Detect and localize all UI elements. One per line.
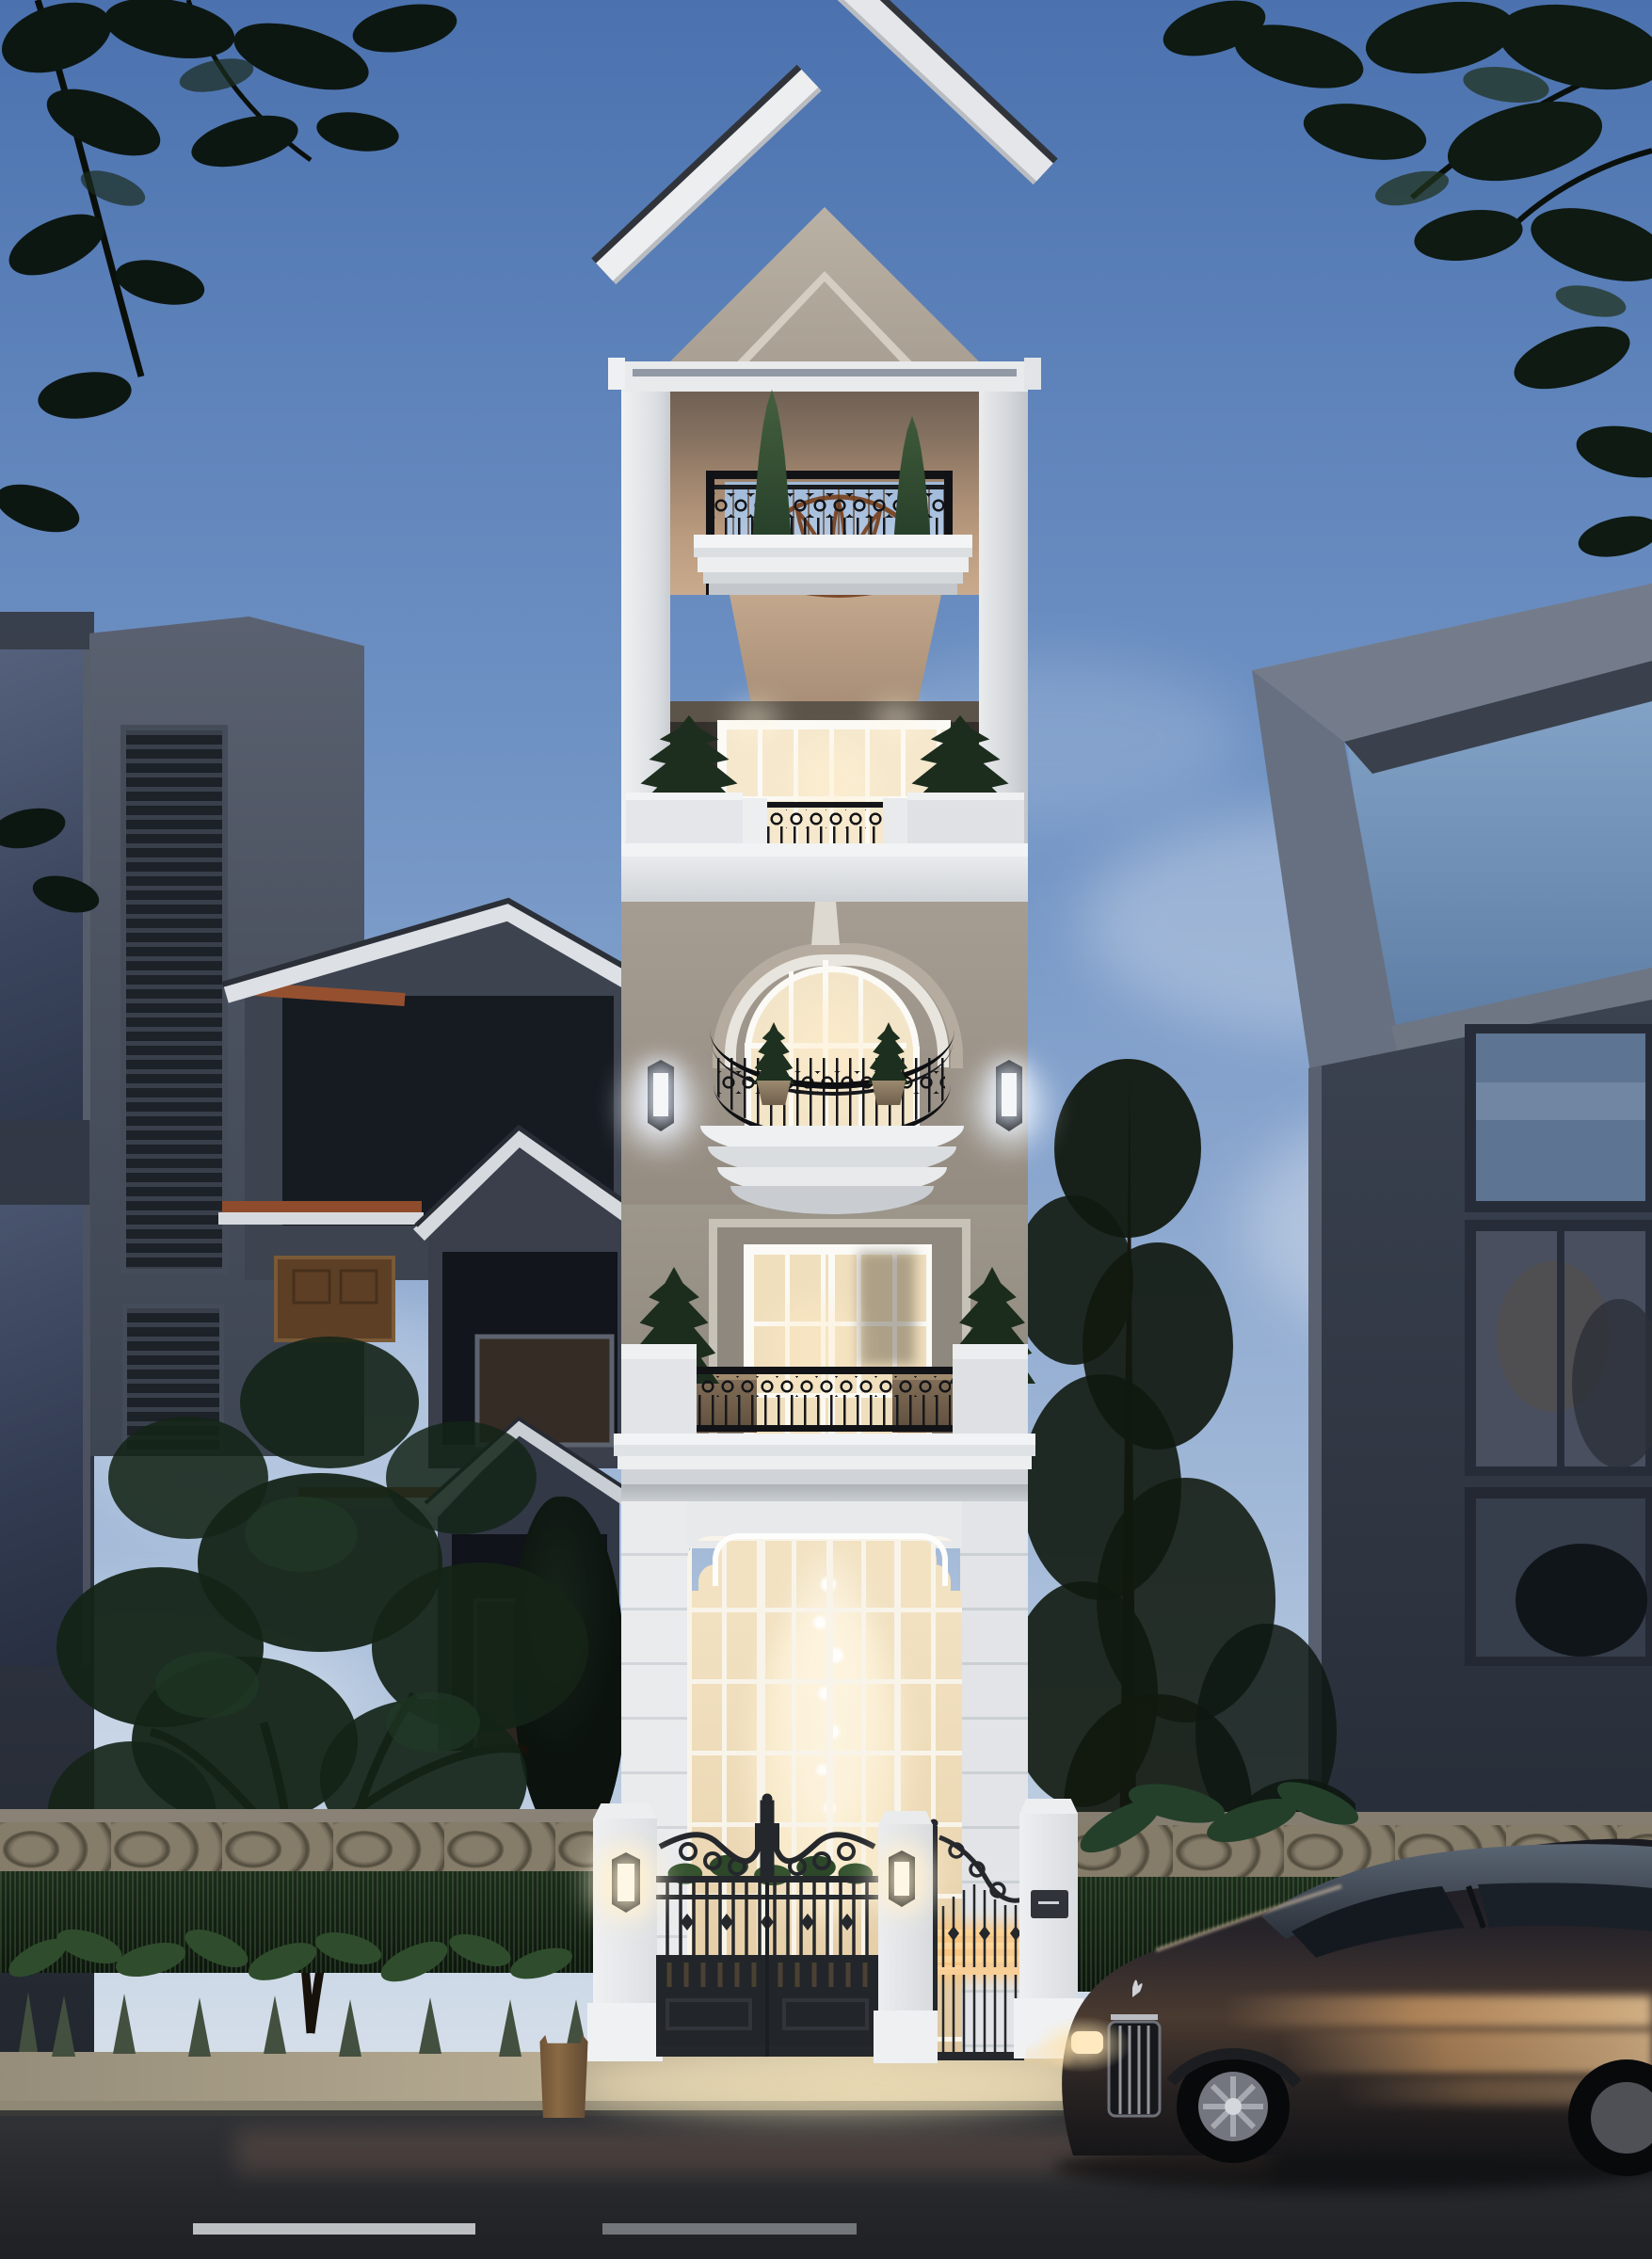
canopy-leaves bbox=[1572, 419, 1652, 486]
gate-center-post bbox=[761, 1801, 774, 1882]
canopy-leaves bbox=[1506, 314, 1637, 402]
fascia-corner-right bbox=[1024, 358, 1041, 390]
main-gate bbox=[654, 1793, 880, 2071]
tropical-plants-left bbox=[0, 1901, 621, 2071]
canopy-leaves bbox=[0, 802, 69, 855]
glass-1-band bbox=[1476, 1082, 1645, 1120]
lane-dash bbox=[193, 2223, 475, 2235]
pillar-lantern-left-glass bbox=[617, 1864, 634, 1901]
loggia-rail-scrolls bbox=[767, 809, 883, 828]
canopy-leaves bbox=[349, 0, 461, 59]
side-gate-bottom-rail bbox=[938, 2052, 1024, 2060]
leaf-cluster bbox=[240, 1337, 419, 1468]
canopy-leaves bbox=[1575, 509, 1652, 563]
terracotta-eave-2 bbox=[222, 1201, 422, 1214]
leaf-highlight bbox=[245, 1497, 358, 1572]
slab-step-3 bbox=[698, 557, 969, 572]
slab-soffit bbox=[709, 584, 957, 595]
leaf-highlight bbox=[386, 1692, 480, 1753]
glass-2-mullion bbox=[1557, 1231, 1564, 1466]
loggia-planter-right bbox=[907, 793, 1024, 843]
eave-groove bbox=[633, 369, 1017, 376]
entry-arch-trim bbox=[713, 1533, 948, 1586]
canopy-leaves bbox=[186, 106, 303, 177]
gate-center-gap bbox=[765, 1882, 769, 2057]
grass-tufts bbox=[19, 1992, 587, 2057]
gate-scroll-ring bbox=[681, 1844, 696, 1859]
pillar-lantern-mid-glass bbox=[894, 1862, 909, 1896]
lane-dash bbox=[602, 2223, 857, 2235]
wall-lantern-right-glass bbox=[1002, 1073, 1017, 1116]
side-gate-diamonds bbox=[948, 1926, 1021, 1941]
canopy-leaves bbox=[100, 0, 239, 68]
gate-scroll-ring bbox=[814, 1853, 829, 1868]
canopy-leaves bbox=[29, 870, 104, 919]
canopy-leaves bbox=[1411, 203, 1526, 267]
eave-band bbox=[621, 361, 1028, 392]
loggia-rail-top bbox=[767, 802, 883, 808]
canopy-leaves bbox=[0, 475, 86, 541]
loggia-planter-left bbox=[626, 793, 743, 843]
cornice-3 bbox=[617, 1456, 1032, 1469]
stone-wall-cap-left bbox=[0, 1809, 604, 1822]
taro-leaf bbox=[312, 1927, 384, 1971]
architectural-rendering-scene: Photorealistic dusk rendering of a narro… bbox=[0, 0, 1652, 2259]
balcony-rail-top bbox=[697, 1367, 953, 1374]
leaf-cluster bbox=[386, 1421, 537, 1534]
cornice-4 bbox=[621, 1469, 1028, 1484]
balcony-rail-bars bbox=[698, 1395, 951, 1427]
taro-leaf bbox=[53, 1923, 126, 1971]
balcony-rail-bottom bbox=[697, 1425, 953, 1432]
car-grille-chrome-top bbox=[1111, 2014, 1158, 2020]
loggia-light-glow bbox=[791, 744, 875, 819]
wooden-basket bbox=[537, 2035, 591, 2118]
eave-band-2 bbox=[218, 1212, 424, 1225]
downlight-glow bbox=[734, 708, 776, 732]
canopy-leaves bbox=[111, 253, 208, 312]
headlight bbox=[1071, 2031, 1103, 2054]
gate-scroll-ring bbox=[839, 1844, 854, 1859]
bow-pot bbox=[872, 1081, 906, 1105]
canopy-top-right bbox=[1130, 0, 1652, 584]
car-highlight-streak-1 bbox=[1224, 1995, 1652, 2027]
slab-step-2 bbox=[694, 548, 972, 557]
canopy-leaves bbox=[227, 10, 377, 103]
bow-pot bbox=[757, 1081, 791, 1105]
cornice-1 bbox=[614, 1434, 1035, 1445]
canopy-leaves-light bbox=[1553, 280, 1629, 322]
band-under-loggia bbox=[621, 857, 1028, 902]
taro-leaf bbox=[244, 1935, 321, 1988]
leaf-cluster bbox=[108, 1417, 268, 1539]
side-gate-bars-lower bbox=[943, 1975, 1016, 2052]
right-house-glass-column bbox=[1465, 1024, 1652, 1666]
cornice-soffit bbox=[621, 1484, 1028, 1501]
luxury-sedan bbox=[1026, 1788, 1652, 2203]
side-gate bbox=[928, 1817, 1024, 2066]
gate-finial bbox=[762, 1794, 772, 1803]
taro-leaf bbox=[506, 1942, 575, 1985]
canopy-leaves bbox=[38, 75, 169, 169]
canopy-leaves bbox=[35, 366, 135, 424]
gate-rail bbox=[656, 1876, 878, 1882]
car-highlight-streak-2 bbox=[1280, 2031, 1652, 2073]
slab-step-1 bbox=[694, 535, 972, 548]
canopy-leaves bbox=[314, 107, 402, 156]
car-window-rear bbox=[1478, 1882, 1652, 1931]
glass-3-foliage bbox=[1516, 1544, 1647, 1657]
canopy-leaves bbox=[1523, 194, 1652, 295]
taro-leaf bbox=[445, 1928, 514, 1973]
slab-step-4 bbox=[703, 572, 963, 584]
car-hub bbox=[1225, 2098, 1242, 2115]
balcony-rail-scrolls-top bbox=[698, 1376, 951, 1397]
band-step bbox=[621, 843, 1028, 857]
arch-keystone bbox=[811, 896, 840, 945]
corbel-wall bbox=[730, 595, 941, 701]
taro-leaf bbox=[376, 1933, 453, 1990]
cornice-2 bbox=[614, 1445, 1035, 1456]
downlight-glow bbox=[875, 708, 917, 732]
leaf-highlight bbox=[155, 1652, 259, 1718]
gate-pillar-left-base bbox=[587, 2003, 663, 2061]
gate-pillar-mid-base bbox=[874, 2011, 938, 2063]
fascia-corner-left bbox=[608, 358, 625, 390]
taro-leaf bbox=[112, 1936, 188, 1982]
wall-lantern-left-glass bbox=[653, 1073, 668, 1116]
stone-wall-left bbox=[0, 1822, 604, 1877]
loggia-ceiling bbox=[670, 701, 979, 722]
gate-scroll-ring bbox=[705, 1853, 720, 1868]
taro-leaf bbox=[180, 1922, 253, 1976]
canopy-top-left bbox=[0, 0, 527, 941]
canopy-leaves bbox=[1299, 95, 1431, 168]
door-glass-reflection bbox=[858, 1252, 915, 1365]
